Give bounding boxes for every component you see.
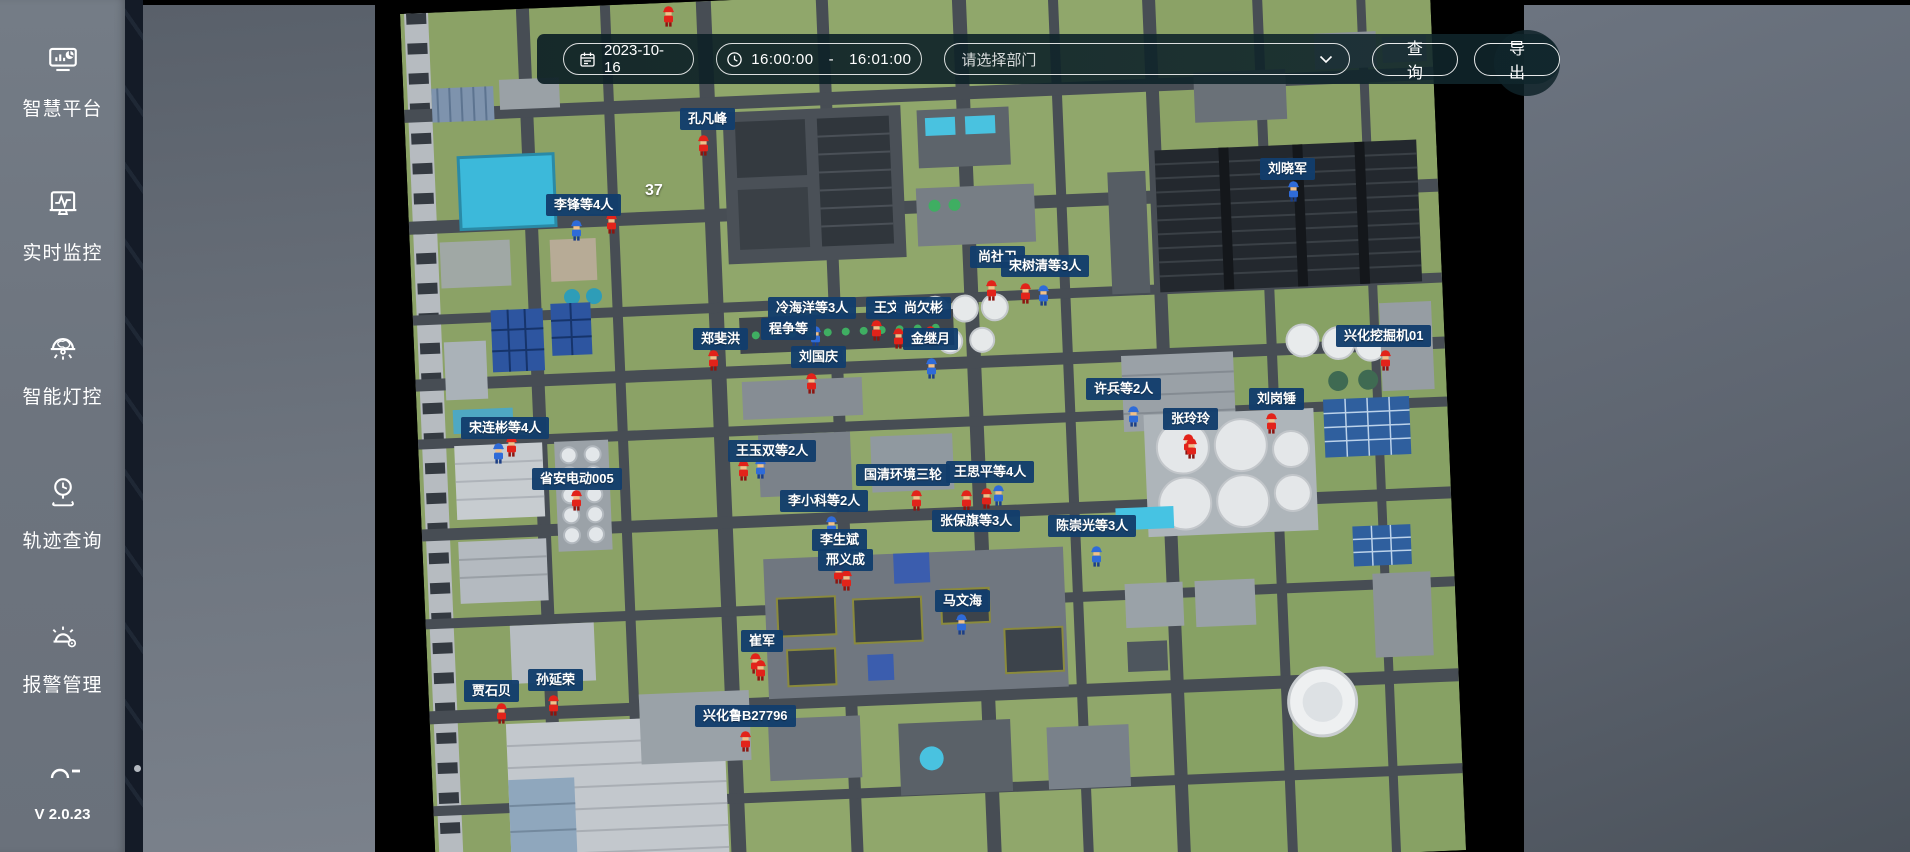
map-person-label[interactable]: 王玉双等2人 bbox=[728, 440, 816, 462]
app-version: V 2.0.23 bbox=[0, 806, 125, 823]
sidebar-item-partial[interactable] bbox=[0, 758, 125, 785]
worker-marker[interactable] bbox=[1127, 405, 1140, 427]
worker-marker[interactable] bbox=[992, 484, 1005, 506]
map-person-label[interactable]: 刘晓军 bbox=[1260, 158, 1315, 180]
sidebar-item-label: 轨迹查询 bbox=[0, 526, 125, 553]
calendar-icon bbox=[580, 52, 595, 67]
decorative-dot bbox=[134, 765, 141, 772]
time-start: 16:00:00 bbox=[751, 51, 813, 68]
map-stage: 2023-10-16 16:00:00 - 16:01:00 请选择部门 查 询… bbox=[0, 0, 1910, 852]
worker-marker[interactable] bbox=[754, 659, 767, 681]
export-button[interactable]: 导 出 bbox=[1474, 43, 1560, 76]
map-person-label[interactable]: 程争等 bbox=[761, 318, 816, 340]
worker-marker[interactable] bbox=[1265, 412, 1278, 434]
map-person-label[interactable]: 宋连彬等4人 bbox=[461, 417, 549, 439]
map-person-label[interactable]: 国清环境三轮 bbox=[856, 464, 950, 486]
worker-marker[interactable] bbox=[960, 489, 973, 511]
clock-icon bbox=[727, 52, 742, 67]
map-person-label[interactable]: 李锋等4人 bbox=[546, 194, 621, 216]
worker-marker[interactable] bbox=[1037, 284, 1050, 306]
worker-marker[interactable] bbox=[1185, 437, 1198, 459]
worker-marker[interactable] bbox=[492, 442, 505, 464]
alarm-bell-icon bbox=[43, 616, 83, 656]
sidebar-item-alarm-management[interactable]: 报警管理 bbox=[0, 616, 125, 697]
main-sidebar: 智慧平台 实时监控 智能灯控 轨迹查询 bbox=[0, 0, 125, 852]
map-person-label[interactable]: 兴化鲁B27796 bbox=[695, 705, 796, 727]
map-person-label[interactable]: 冷海洋等3人 bbox=[768, 297, 856, 319]
map-person-label[interactable]: 陈崇光等3人 bbox=[1048, 515, 1136, 537]
worker-marker[interactable] bbox=[805, 372, 818, 394]
worker-marker[interactable] bbox=[697, 134, 710, 156]
worker-marker[interactable] bbox=[570, 219, 583, 241]
map-person-label[interactable]: 李生斌 bbox=[812, 529, 867, 551]
worker-marker[interactable] bbox=[840, 569, 853, 591]
map-person-label[interactable]: 金继月 bbox=[903, 328, 958, 350]
worker-marker[interactable] bbox=[739, 730, 752, 752]
date-value: 2023-10-16 bbox=[604, 42, 677, 76]
sidebar-divider bbox=[125, 0, 143, 852]
smart-lamp-icon bbox=[43, 328, 83, 368]
worker-marker[interactable] bbox=[925, 357, 938, 379]
person-partial-icon bbox=[40, 758, 86, 780]
map-person-label[interactable]: 贾石贝 bbox=[464, 680, 519, 702]
map-person-label[interactable]: 邢义成 bbox=[818, 549, 873, 571]
worker-marker[interactable] bbox=[985, 279, 998, 301]
worker-marker[interactable] bbox=[737, 459, 750, 481]
track-clock-icon bbox=[43, 472, 83, 512]
map-person-label[interactable]: 崔军 bbox=[741, 630, 783, 652]
map-person-label[interactable]: 兴化挖掘机01 bbox=[1336, 325, 1431, 347]
chevron-down-icon bbox=[1319, 55, 1333, 64]
map-person-label[interactable]: 刘岗锤 bbox=[1249, 388, 1304, 410]
map-person-label[interactable]: 马文海 bbox=[935, 590, 990, 612]
sidebar-item-track-query[interactable]: 轨迹查询 bbox=[0, 472, 125, 553]
worker-marker[interactable] bbox=[955, 613, 968, 635]
sidebar-item-smart-platform[interactable]: 智慧平台 bbox=[0, 40, 125, 121]
worker-marker[interactable] bbox=[570, 489, 583, 511]
sidebar-item-label: 智慧平台 bbox=[0, 94, 125, 121]
map-person-label[interactable]: 省安电动005 bbox=[532, 468, 622, 490]
sidebar-item-smart-light[interactable]: 智能灯控 bbox=[0, 328, 125, 409]
left-blank-panel bbox=[143, 5, 375, 852]
worker-marker[interactable] bbox=[1090, 545, 1103, 567]
department-placeholder: 请选择部门 bbox=[961, 49, 1036, 70]
sidebar-item-realtime-monitor[interactable]: 实时监控 bbox=[0, 184, 125, 265]
right-blank-panel bbox=[1524, 5, 1910, 852]
time-separator: - bbox=[829, 51, 835, 68]
department-select[interactable]: 请选择部门 bbox=[944, 43, 1350, 75]
sidebar-item-label: 报警管理 bbox=[0, 670, 125, 697]
map-person-label[interactable]: 孔凡峰 bbox=[680, 108, 735, 130]
facility-map[interactable] bbox=[400, 0, 1466, 852]
map-person-label[interactable]: 张保旗等3人 bbox=[932, 510, 1020, 532]
monitor-pulse-icon bbox=[43, 184, 83, 224]
time-end: 16:01:00 bbox=[849, 51, 911, 68]
query-button[interactable]: 查 询 bbox=[1372, 43, 1458, 76]
map-person-label[interactable]: 郑斐洪 bbox=[693, 328, 748, 350]
map-person-label[interactable]: 孙延荣 bbox=[528, 669, 583, 691]
map-count-overlay[interactable]: 37 bbox=[645, 182, 663, 200]
worker-marker[interactable] bbox=[547, 694, 560, 716]
worker-marker[interactable] bbox=[495, 702, 508, 724]
map-person-label[interactable]: 王思平等4人 bbox=[946, 461, 1034, 483]
map-person-label[interactable]: 许兵等2人 bbox=[1086, 378, 1161, 400]
map-person-label[interactable]: 李小科等2人 bbox=[780, 490, 868, 512]
worker-marker[interactable] bbox=[1287, 180, 1300, 202]
map-person-label[interactable]: 尚欠彬 bbox=[896, 297, 951, 319]
time-range-picker[interactable]: 16:00:00 - 16:01:00 bbox=[716, 43, 922, 75]
sidebar-item-label: 智能灯控 bbox=[0, 382, 125, 409]
map-person-label[interactable]: 刘国庆 bbox=[791, 346, 846, 368]
worker-marker[interactable] bbox=[910, 489, 923, 511]
dashboard-monitor-icon bbox=[43, 40, 83, 80]
map-person-label[interactable]: 张玲玲 bbox=[1163, 408, 1218, 430]
date-picker[interactable]: 2023-10-16 bbox=[563, 43, 694, 75]
worker-marker[interactable] bbox=[870, 319, 883, 341]
map-person-label[interactable]: 宋树清等3人 bbox=[1001, 255, 1089, 277]
worker-marker[interactable] bbox=[707, 349, 720, 371]
worker-marker[interactable] bbox=[1379, 349, 1392, 371]
query-toolbar: 2023-10-16 16:00:00 - 16:01:00 请选择部门 查 询… bbox=[537, 34, 1560, 84]
sidebar-item-label: 实时监控 bbox=[0, 238, 125, 265]
worker-marker[interactable] bbox=[662, 5, 675, 27]
worker-marker[interactable] bbox=[1019, 282, 1032, 304]
